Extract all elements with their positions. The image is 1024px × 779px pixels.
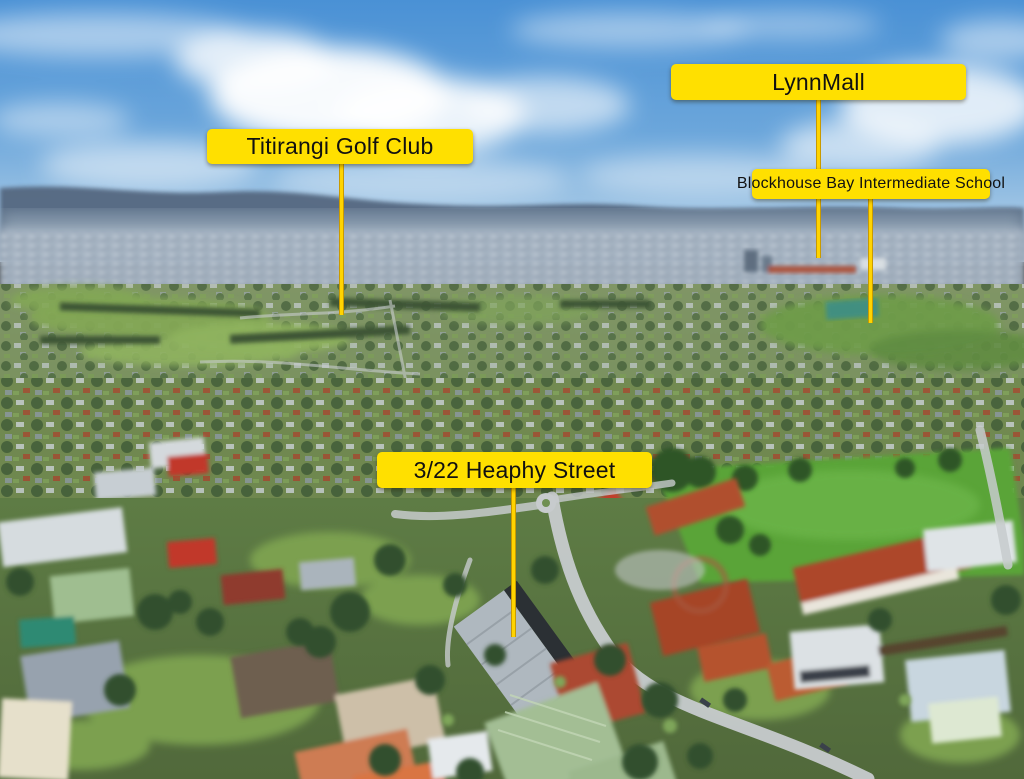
- aerial-photo: LynnMallTitirangi Golf ClubBlockhouse Ba…: [0, 0, 1024, 779]
- aerial-photo-art: [0, 0, 1024, 779]
